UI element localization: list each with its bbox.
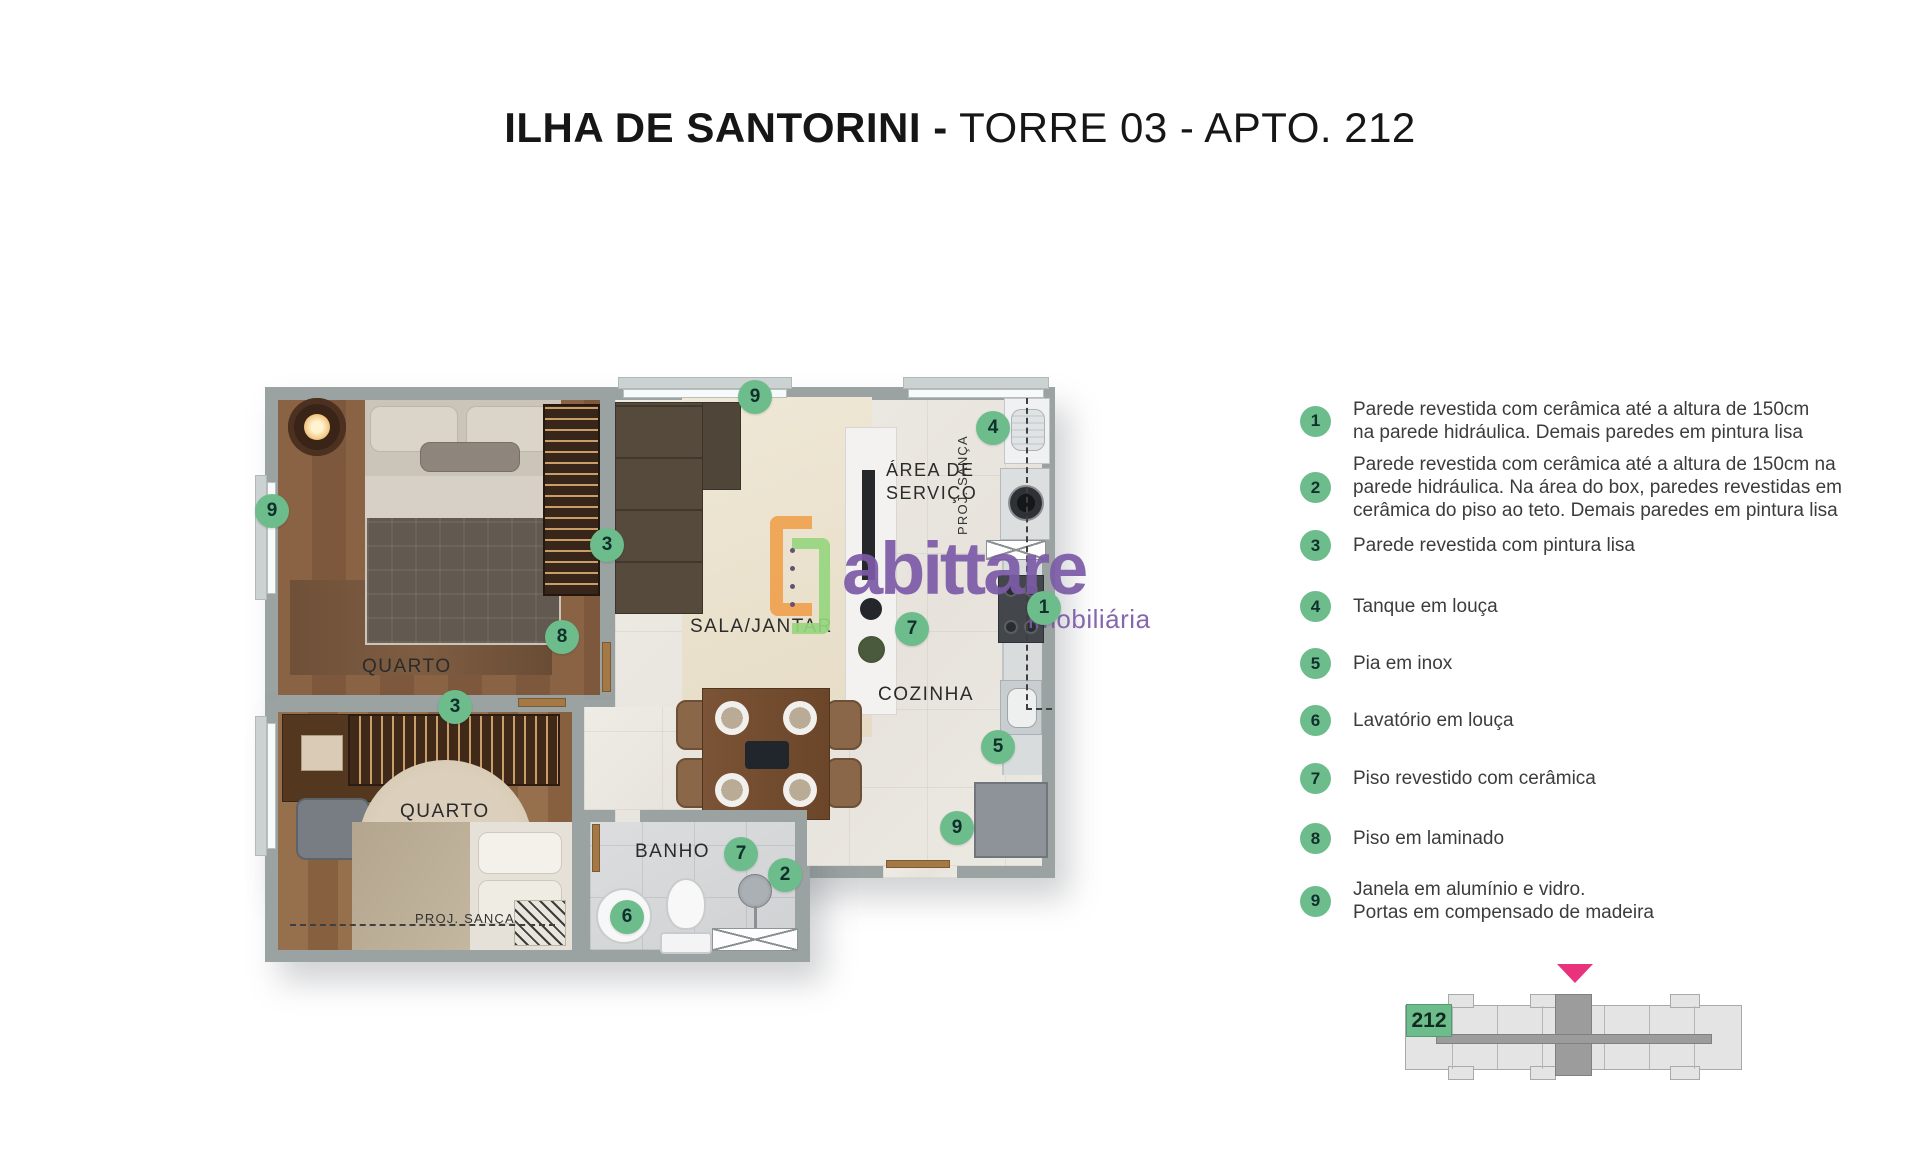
plate [783,701,817,735]
dining-chair [826,700,862,750]
logo-hinge-dot [790,602,795,607]
plan-badge-9: 9 [738,380,772,414]
plan-badge-2: 2 [768,858,802,892]
legend-item-5: 5Pia em inox [1300,648,1452,679]
legend-item-7: 7Piso revestido com cerâmica [1300,763,1596,794]
legend-text-1: Parede revestida com cerâmica até a altu… [1353,398,1809,444]
legend-text-2: Parede revestida com cerâmica até a altu… [1353,453,1842,522]
page: ILHA DE SANTORINI - TORRE 03 - APTO. 212 [0,0,1920,1152]
legend-text-5: Pia em inox [1353,652,1452,675]
nightstand-lamp [288,398,346,456]
legend-text-7: Piso revestido com cerâmica [1353,767,1596,790]
bedroom2-door [518,698,566,707]
logo-hinge-dot [790,548,795,553]
proj-sanca-bedroom-label: PROJ. SANÇA [415,911,515,926]
wall-bedroom1-living [600,400,615,640]
bed-sheet [365,476,561,518]
wall-bedrooms-divider [278,695,516,712]
plan-badge-1: 1 [1027,591,1061,625]
wall-bedroom2-right [572,712,584,950]
wall-bath-top-a [584,810,592,822]
centerpiece [745,741,789,769]
bedroom2-window [267,723,276,849]
legend: 1Parede revestida com cerâmica até a alt… [1300,0,1920,1152]
logo-hinge-dot [790,566,795,571]
bedroom2-bed [352,822,574,950]
proj-sanca-service-label: PROJ. SANÇA [955,435,970,535]
bedroom1-wardrobe [543,404,600,596]
legend-item-3: 3Parede revestida com pintura lisa [1300,530,1635,561]
legend-badge-7: 7 [1300,763,1331,794]
legend-item-1: 1Parede revestida com cerâmica até a alt… [1300,398,1809,444]
legend-text-4: Tanque em louça [1353,595,1498,618]
legend-badge-9: 9 [1300,886,1331,917]
legend-text-8: Piso em laminado [1353,827,1504,850]
plate [715,701,749,735]
proj-sanca-line-service-end [1026,708,1052,710]
legend-item-2: 2Parede revestida com cerâmica até a alt… [1300,453,1842,522]
lamp-glow-icon [304,414,330,440]
toilet [660,878,712,954]
kitchen-label: COZINHA [878,684,974,706]
burner [1004,620,1018,634]
plan-badge-6: 6 [610,900,644,934]
bedroom1-door [602,642,611,692]
tank-basin [1011,409,1045,451]
bed-throw [352,822,470,950]
title-project: ILHA DE SANTORINI - [504,104,948,151]
wall-bedrooms-stub [566,695,584,712]
patterned-pillow [514,900,566,946]
laptop [301,735,343,771]
bedroom1-window-sill [255,475,267,600]
plan-badge-4: 4 [976,411,1010,445]
legend-text-3: Parede revestida com pintura lisa [1353,534,1635,557]
plan-badge-8: 8 [545,620,579,654]
legend-badge-1: 1 [1300,406,1331,437]
bedroom2-window-sill [255,716,267,856]
accent-pillow [420,442,520,472]
dining-chair [826,758,862,808]
legend-text-9: Janela em alumínio e vidro.Portas em com… [1353,878,1654,924]
service-window-sill [903,377,1049,389]
plan-badge-5: 5 [981,730,1015,764]
bedroom2-label: QUARTO [400,801,490,823]
legend-badge-8: 8 [1300,823,1331,854]
plan-badge-3: 3 [590,528,624,562]
toilet-bowl [666,878,706,930]
service-window [908,389,1044,398]
bedroom1-bed [365,400,561,645]
legend-item-4: 4Tanque em louça [1300,591,1498,622]
legend-badge-3: 3 [1300,530,1331,561]
plan-badge-7: 7 [724,837,758,871]
plan-badge-3: 3 [438,690,472,724]
bedroom1-label: QUARTO [362,656,452,678]
bath-label: BANHO [635,841,710,863]
logo-hinge-dot [790,584,795,589]
sofa-body [615,402,703,614]
wall-bath-top-b [640,810,807,822]
logo-bracket-green-icon [792,538,830,634]
plate [715,773,749,807]
bath-door [592,824,600,872]
shower-head [738,874,772,908]
legend-item-6: 6Lavatório em louça [1300,705,1514,736]
toilet-tank [660,932,712,954]
legend-badge-2: 2 [1300,472,1331,503]
pillow [478,832,562,874]
shower-box [712,928,798,951]
plan-badge-9: 9 [255,494,289,528]
legend-badge-4: 4 [1300,591,1331,622]
plan-badge-9: 9 [940,811,974,845]
plan-badge-7: 7 [895,612,929,646]
plate [783,773,817,807]
legend-badge-5: 5 [1300,648,1331,679]
legend-badge-6: 6 [1300,705,1331,736]
dining-table [702,688,830,820]
legend-text-6: Lavatório em louça [1353,709,1514,732]
legend-item-8: 8Piso em laminado [1300,823,1504,854]
fridge [974,782,1048,858]
plant [858,636,885,663]
legend-item-9: 9Janela em alumínio e vidro.Portas em co… [1300,878,1654,924]
bed-blanket [367,518,559,643]
entrance-door [886,860,950,868]
